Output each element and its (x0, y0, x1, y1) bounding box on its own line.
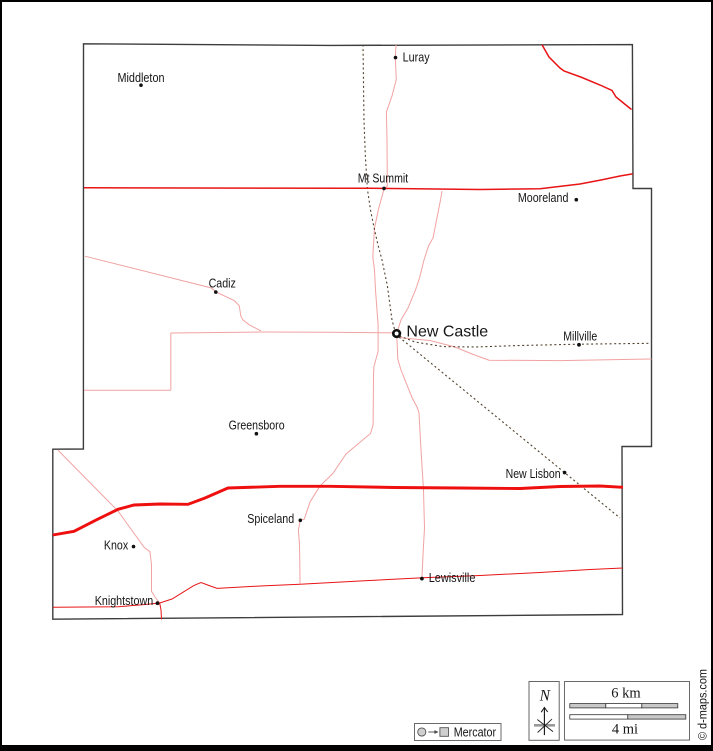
svg-text:Luray: Luray (403, 49, 430, 64)
svg-text:4 mi: 4 mi (612, 722, 638, 738)
svg-text:Millville: Millville (563, 329, 597, 344)
svg-text:Mercator: Mercator (454, 725, 497, 740)
svg-text:Knightstown: Knightstown (95, 593, 154, 608)
svg-text:© d-maps.com: © d-maps.com (698, 669, 710, 740)
svg-text:Greensboro: Greensboro (229, 418, 285, 433)
svg-text:Lewisville: Lewisville (429, 570, 476, 585)
svg-text:New Lisbon: New Lisbon (506, 466, 561, 481)
svg-text:Middleton: Middleton (118, 70, 165, 85)
svg-text:Mooreland: Mooreland (518, 190, 569, 205)
svg-text:Mt Summit: Mt Summit (358, 171, 409, 186)
svg-text:6 km: 6 km (611, 686, 641, 702)
svg-text:Spiceland: Spiceland (247, 511, 294, 526)
svg-text:Knox: Knox (104, 538, 129, 553)
svg-text:N: N (539, 687, 552, 704)
svg-text:Cadiz: Cadiz (209, 276, 236, 291)
svg-text:New Castle: New Castle (406, 324, 488, 341)
